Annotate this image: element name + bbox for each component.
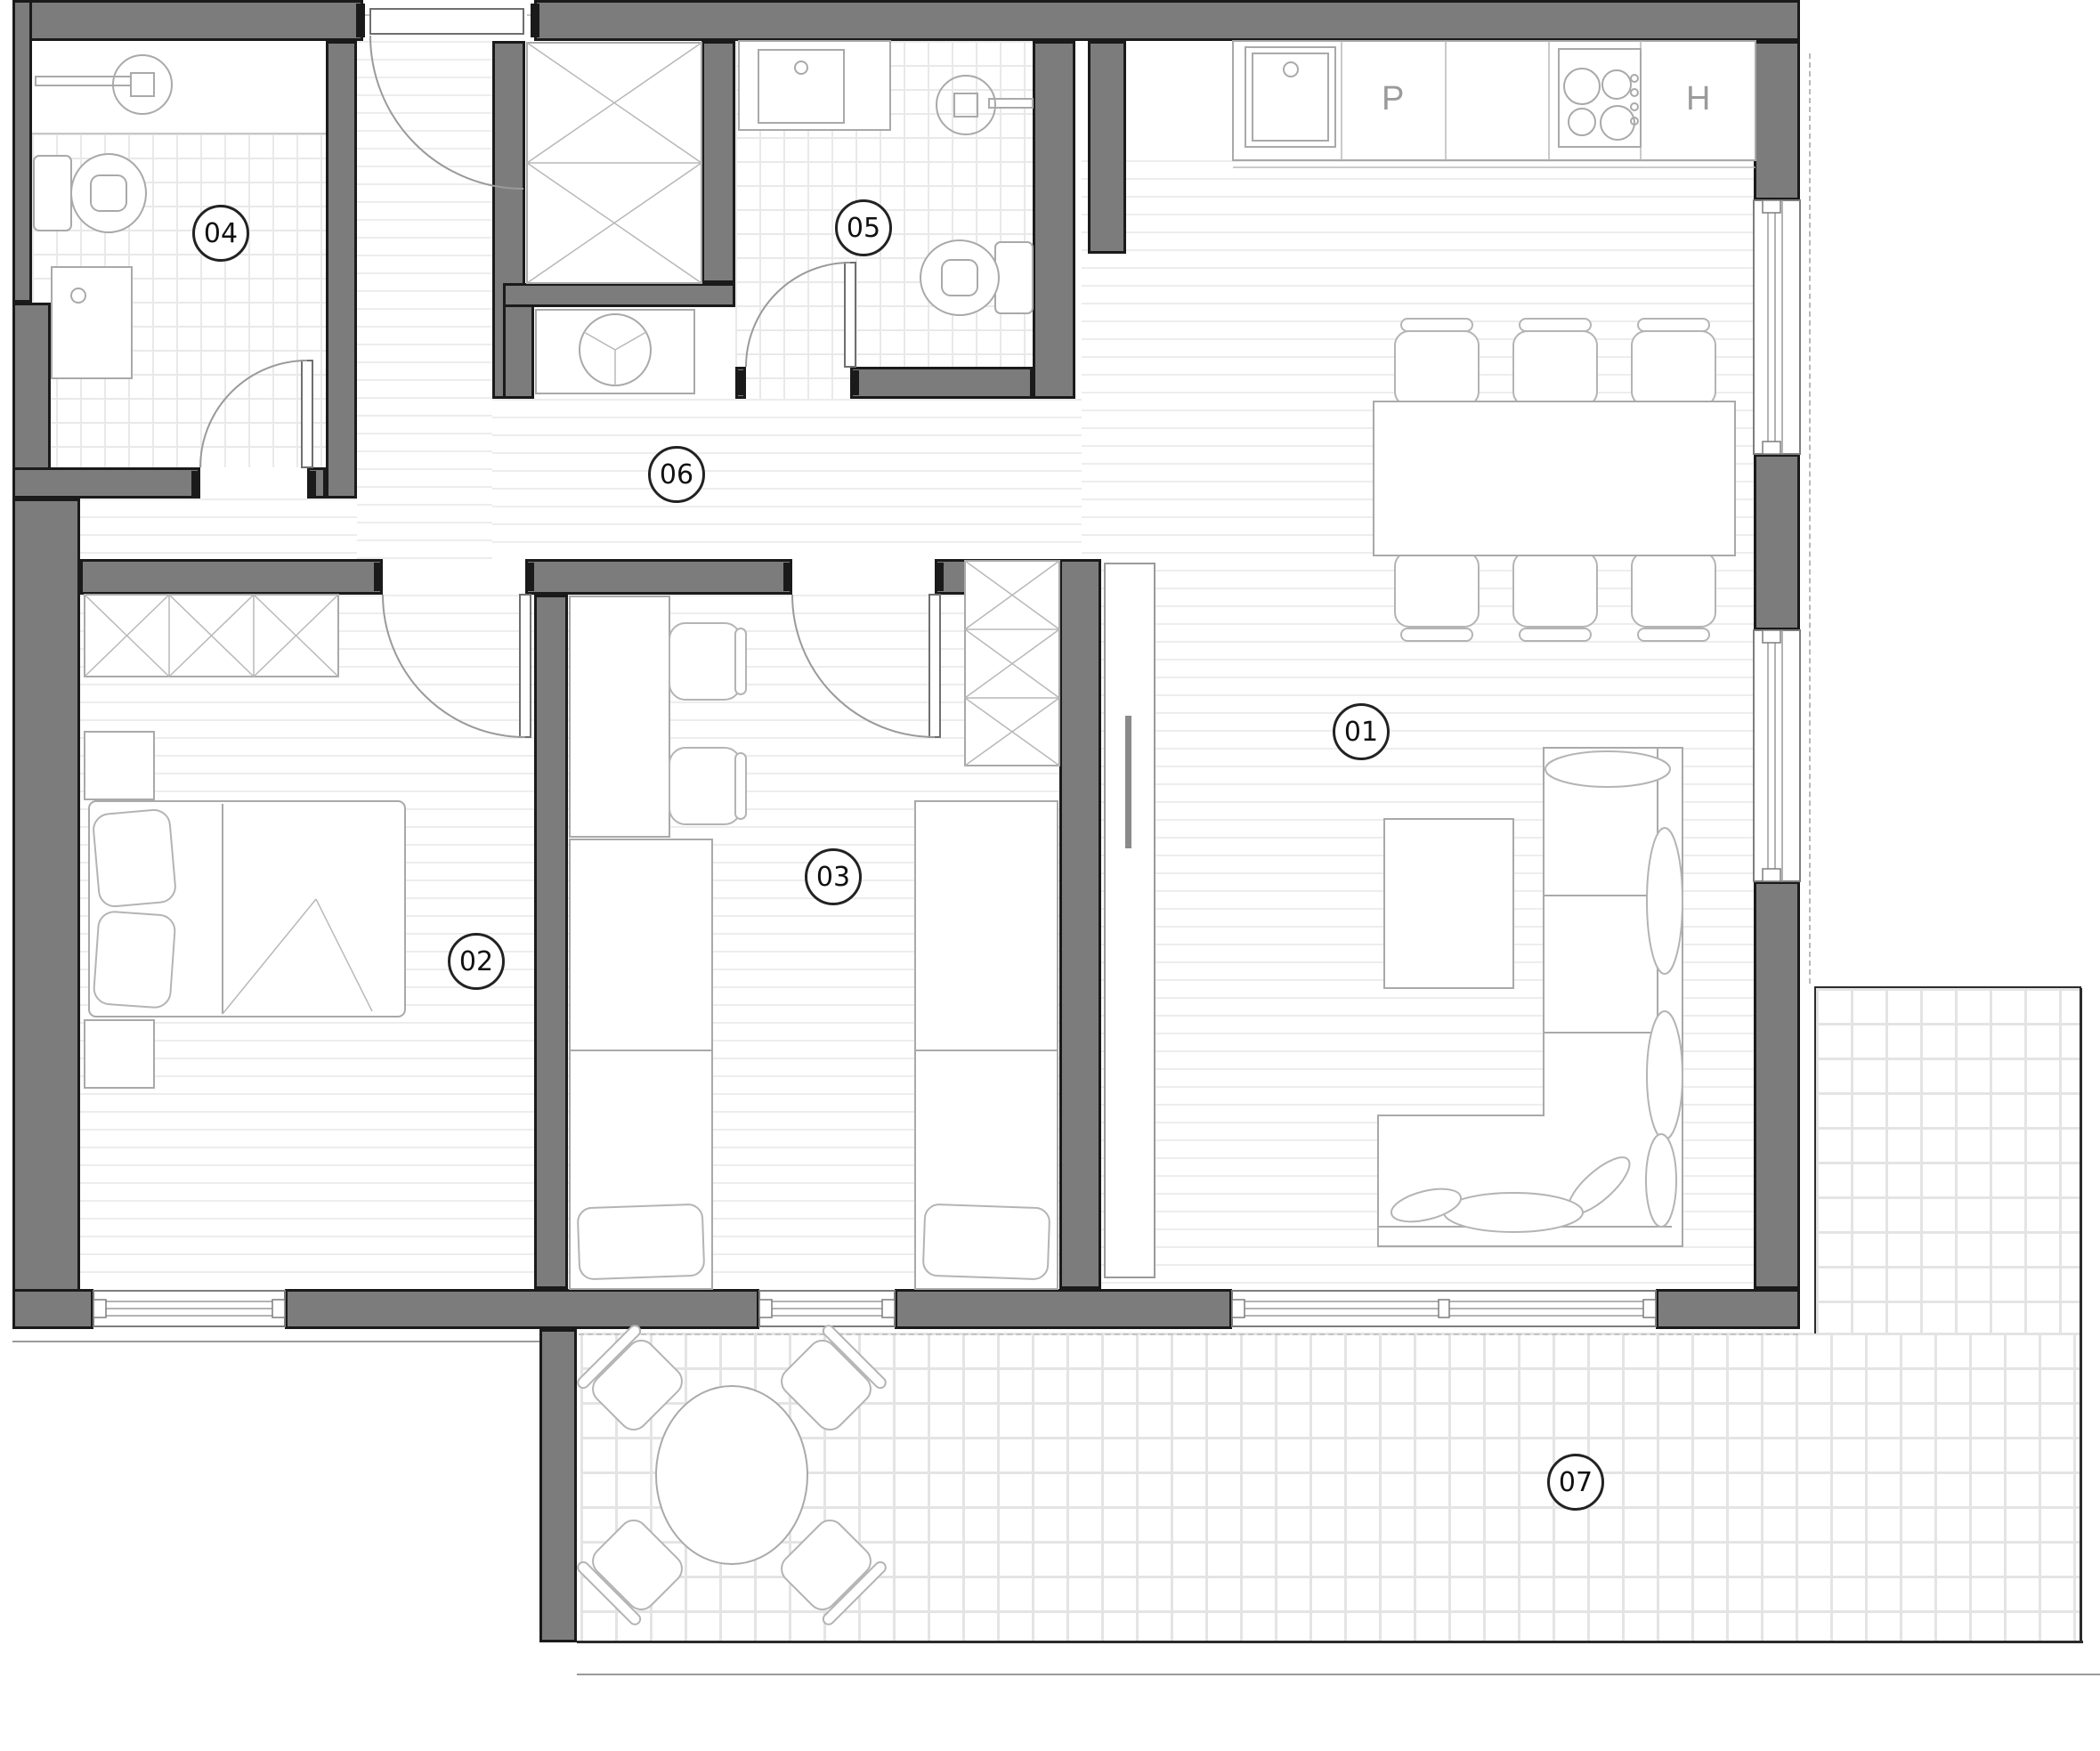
- wardrobe-icon-bedroom02: [85, 595, 338, 677]
- sliding-door-handle[interactable]: [1125, 716, 1131, 848]
- door-bedroom02[interactable]: [374, 563, 534, 737]
- toilet-icon: [34, 154, 146, 232]
- room-badge-hallway: 06: [648, 446, 705, 503]
- single-bed-icon-east: [915, 801, 1058, 1289]
- shower-icon: [36, 55, 172, 114]
- nightstand-north: [85, 732, 154, 799]
- room-badge-living: 01: [1333, 703, 1390, 760]
- door-bathroom05[interactable]: [737, 263, 859, 395]
- window-bedroom03: [759, 1291, 895, 1326]
- sliding-door-panel[interactable]: [1104, 563, 1155, 1278]
- window-bedroom02: [93, 1291, 285, 1326]
- door-bathroom04[interactable]: [191, 361, 316, 496]
- fixtures-overlay: [0, 0, 2100, 1751]
- dishwasher-label: P: [1382, 80, 1404, 118]
- single-bed-icon-west: [570, 839, 712, 1289]
- floor-plan: P H 01 02 03 04 05 06 07: [0, 0, 2100, 1751]
- toilet-icon-05: [920, 240, 1033, 315]
- room-badge-bedroom: 02: [448, 933, 505, 990]
- kitchen-counter: [1233, 41, 1755, 167]
- desk-chairs: [669, 623, 746, 824]
- terrace-table-icon: [656, 1386, 807, 1564]
- coffee-table-icon: [1384, 819, 1513, 988]
- door-bedroom03[interactable]: [783, 563, 944, 737]
- dining-table-icon: [1374, 401, 1735, 555]
- double-bed-icon: [89, 801, 405, 1017]
- room-badge-bath04: 04: [192, 205, 249, 262]
- nightstand-south: [85, 1020, 154, 1088]
- washing-machine-icon: [536, 310, 694, 393]
- shower-icon-05: [936, 76, 1033, 134]
- washbasin-icon-05: [739, 41, 890, 130]
- wardrobe-icon-hall: [527, 43, 701, 283]
- window-living: [1232, 1291, 1656, 1326]
- entry-door[interactable]: [356, 4, 539, 189]
- window-east-1: [1754, 200, 1800, 454]
- washbasin-icon: [52, 267, 132, 378]
- oven-label: H: [1686, 80, 1710, 118]
- room-badge-bath05: 05: [835, 199, 892, 256]
- window-east-2: [1754, 630, 1800, 881]
- room-badge-terrace: 07: [1547, 1454, 1604, 1511]
- desk-icon: [570, 596, 669, 837]
- room-badge-kidsroom: 03: [805, 848, 862, 905]
- wardrobe-icon-bedroom03: [965, 561, 1059, 766]
